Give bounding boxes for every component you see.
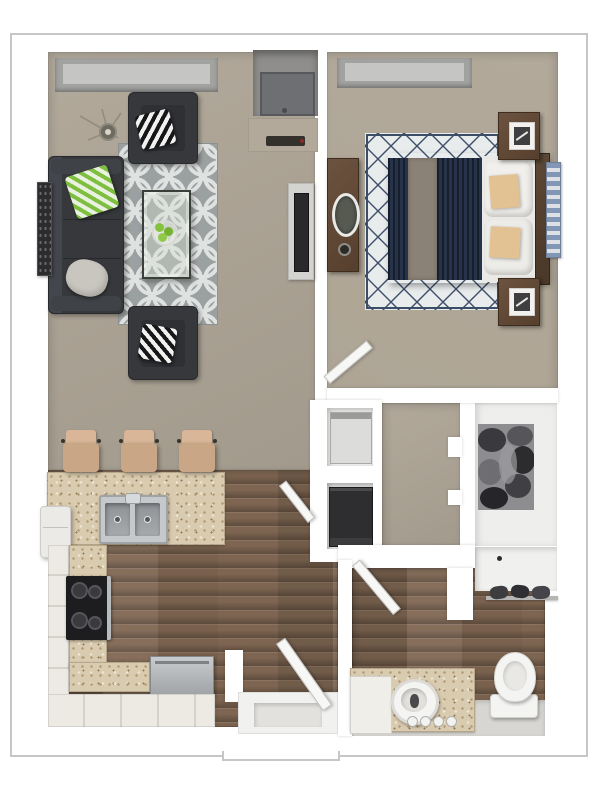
picture-frame: [509, 288, 535, 316]
nightstand-top: [498, 112, 540, 160]
glass-coffee-table: [142, 190, 191, 279]
living-room-window: [55, 58, 218, 92]
hallway-floor: [382, 403, 460, 551]
toilet-seat: [503, 661, 527, 691]
stool-seat: [179, 443, 215, 472]
dresser-knob: [338, 243, 351, 256]
stool-leg: [119, 439, 123, 443]
stool-leg: [97, 439, 101, 443]
media-alcove: [253, 50, 318, 116]
tan-accent-pillow: [489, 174, 520, 209]
sink-faucet: [410, 694, 419, 708]
stool-leg: [155, 439, 159, 443]
utility-closet-walls: [310, 400, 382, 562]
green-apple: [155, 223, 164, 232]
dishwasher-handle: [155, 661, 209, 664]
floor-plan-rendering: [0, 0, 600, 800]
oval-mirror: [332, 193, 360, 237]
closet-jamb-bottom: [448, 490, 462, 505]
range-cooktop: [66, 576, 111, 640]
window-sill: [345, 63, 464, 81]
hanging-clothes: [478, 424, 534, 510]
stool-leg: [177, 439, 181, 443]
bar-stool: [62, 430, 100, 472]
toilet-bowl: [494, 652, 536, 702]
burner: [88, 585, 102, 599]
burner: [71, 582, 88, 599]
stool-seat: [63, 443, 99, 472]
drawer-knob: [446, 716, 457, 727]
stool-seat: [121, 443, 157, 472]
alcove-storage-box: [260, 72, 315, 116]
picture-frame: [509, 122, 535, 150]
counter-tile-bottom: [48, 694, 215, 727]
bed: [388, 153, 548, 283]
zebra-pillow: [137, 323, 178, 364]
dark-appliance: [329, 487, 373, 547]
tan-accent-pillow: [489, 226, 521, 259]
green-apple: [158, 233, 167, 242]
shower-drain: [497, 556, 502, 561]
fridge-door-seam: [43, 527, 68, 528]
navy-duvet-left: [388, 158, 408, 280]
box-knob: [282, 108, 287, 113]
sofa-armrest-bottom: [51, 296, 121, 311]
bar-stool: [120, 430, 158, 472]
drain: [114, 516, 121, 523]
utility-niche-top: [327, 408, 373, 466]
kitchen-faucet: [125, 493, 141, 504]
stool-leg: [213, 439, 217, 443]
cushion-seam: [63, 219, 121, 220]
entry-nook-bump: [222, 751, 340, 761]
bathroom-wall-stub: [447, 568, 473, 620]
closet-jamb-top: [448, 437, 462, 457]
blue-wall-decor: [546, 162, 561, 258]
white-appliance: [330, 412, 372, 464]
window-sill: [63, 64, 210, 84]
tv-screen: [294, 193, 309, 272]
dresser: [327, 158, 359, 272]
branch-decor: [74, 104, 124, 154]
towel: [510, 584, 529, 599]
threshold-recess: [254, 703, 322, 727]
bedroom-window: [337, 58, 472, 88]
drain: [144, 516, 151, 523]
burner: [71, 612, 88, 629]
media-shelf: [248, 118, 318, 152]
nightstand-bottom: [498, 278, 540, 326]
indicator-dot: [300, 139, 304, 143]
stool-leg: [61, 439, 65, 443]
vanity-cabinet: [350, 676, 392, 734]
drawer-knob: [407, 716, 418, 727]
burner: [88, 616, 102, 630]
counter-granite-bottom: [69, 662, 150, 692]
dishwasher: [150, 656, 214, 698]
drawer-knob: [433, 716, 444, 727]
double-sink: [99, 495, 168, 544]
tv-console: [288, 183, 314, 280]
wall-art: [37, 182, 52, 276]
navy-duvet-right: [437, 158, 482, 280]
bar-stool: [178, 430, 216, 472]
cushion-seam: [63, 258, 121, 259]
utility-niche-bottom: [327, 483, 373, 549]
bed-runner: [408, 158, 437, 280]
drawer-knob: [420, 716, 431, 727]
